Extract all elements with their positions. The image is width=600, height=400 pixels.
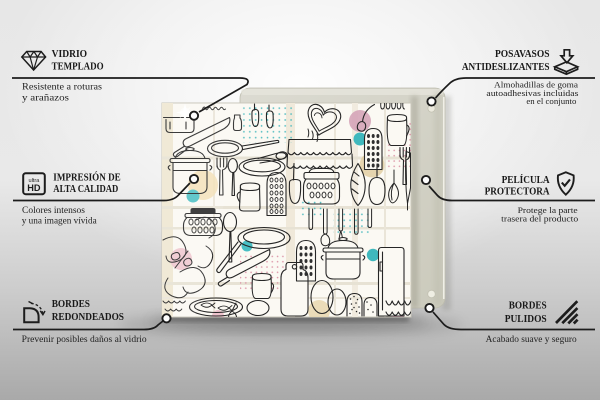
svg-text:HD: HD xyxy=(27,183,41,193)
svg-text:POSAVASOS: POSAVASOS xyxy=(495,49,550,60)
svg-text:Acabado suave y seguro: Acabado suave y seguro xyxy=(486,335,577,345)
svg-text:BORDES: BORDES xyxy=(52,299,90,310)
svg-text:PROTECTORA: PROTECTORA xyxy=(485,187,550,198)
svg-text:VIDRIO: VIDRIO xyxy=(52,49,88,60)
svg-text:y una imagen vívida: y una imagen vívida xyxy=(22,217,97,227)
svg-text:ANTIDESLIZANTES: ANTIDESLIZANTES xyxy=(462,62,550,73)
svg-text:REDONDEADOS: REDONDEADOS xyxy=(52,312,124,323)
svg-text:PELÍCULA: PELÍCULA xyxy=(502,174,550,186)
svg-text:y arañazos: y arañazos xyxy=(22,93,69,103)
svg-text:TEMPLADO: TEMPLADO xyxy=(52,62,104,73)
svg-text:Resistente a roturas: Resistente a roturas xyxy=(22,83,102,93)
svg-text:ALTA CALIDAD: ALTA CALIDAD xyxy=(53,184,118,195)
svg-text:trasera del producto: trasera del producto xyxy=(501,214,579,224)
svg-text:Colores intensos: Colores intensos xyxy=(22,206,85,216)
svg-text:PULIDOS: PULIDOS xyxy=(505,314,547,325)
svg-text:IMPRESIÓN DE: IMPRESIÓN DE xyxy=(53,171,120,183)
svg-text:Prevenir posibles daños al vid: Prevenir posibles daños al vidrio xyxy=(22,335,147,345)
svg-text:en el conjunto: en el conjunto xyxy=(526,96,577,106)
svg-text:BORDES: BORDES xyxy=(509,300,547,311)
